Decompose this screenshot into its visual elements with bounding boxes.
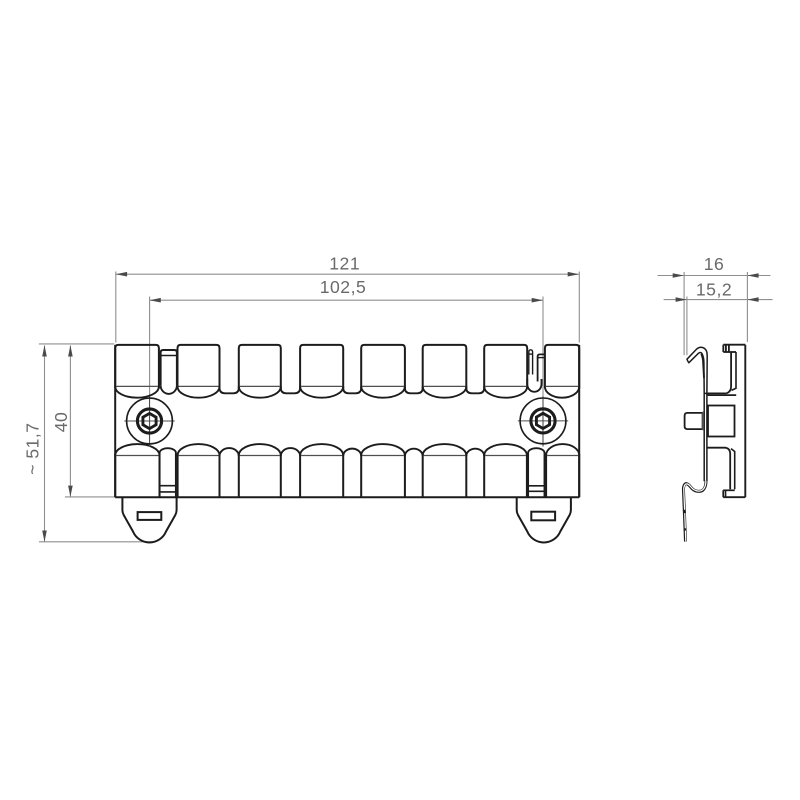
svg-text:15,2: 15,2 — [696, 279, 732, 299]
svg-text:40: 40 — [51, 412, 71, 433]
svg-text:121: 121 — [329, 253, 360, 273]
svg-text:~ 51,7: ~ 51,7 — [23, 422, 43, 474]
svg-text:16: 16 — [704, 254, 725, 274]
svg-text:102,5: 102,5 — [320, 277, 367, 297]
